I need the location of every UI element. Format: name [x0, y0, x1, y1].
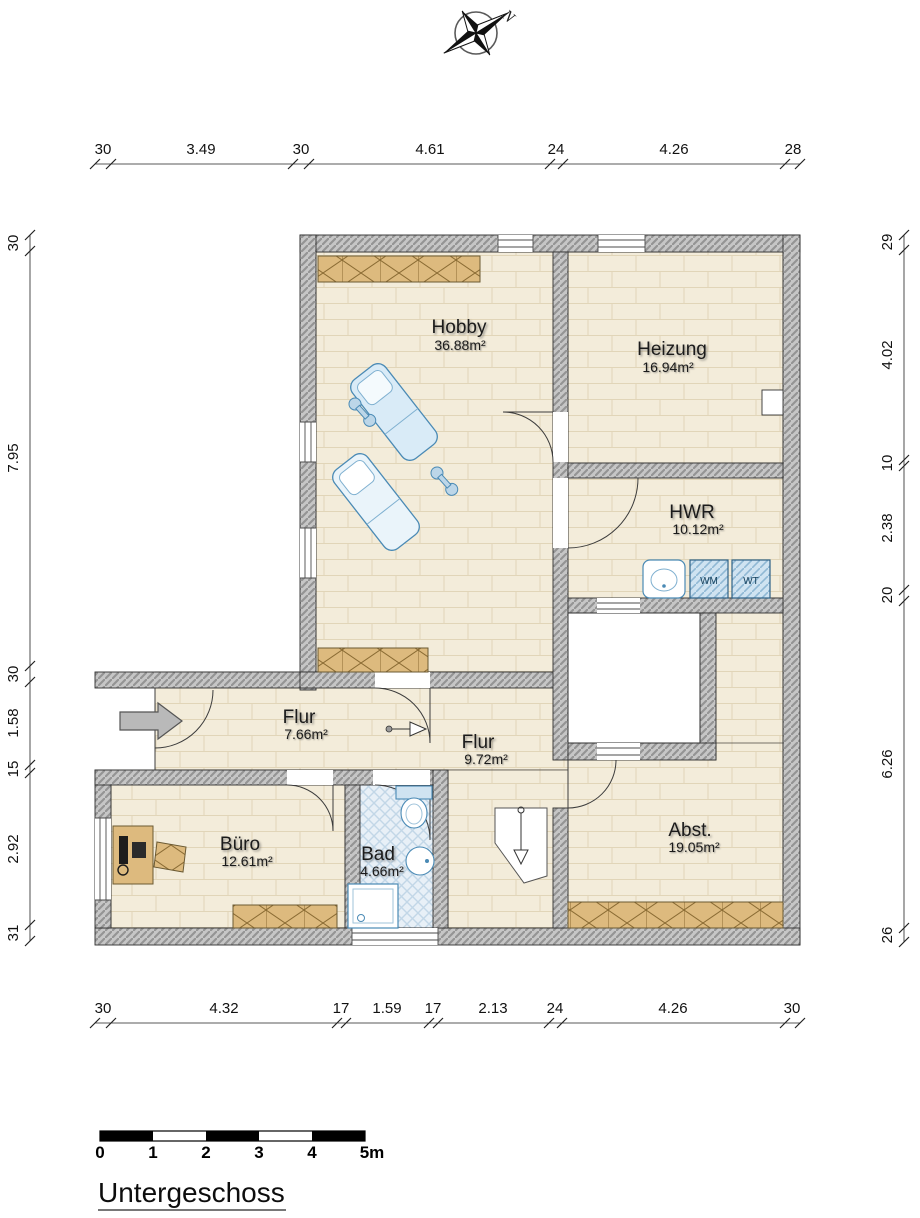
scale-label-4: 4 [307, 1143, 317, 1162]
dim-bottom-5: 2.13 [478, 1000, 507, 1017]
dim-bottom-8: 30 [784, 1000, 801, 1017]
dim-left-2: 30 [5, 666, 22, 683]
dim-right-3: 2.38 [879, 513, 896, 542]
dim-right-2: 10 [879, 455, 896, 472]
dim-left-6: 31 [5, 925, 22, 942]
room-label-buero: Büro [220, 834, 260, 855]
scale-label-5: 5m [360, 1143, 385, 1162]
dim-top-5: 4.26 [659, 141, 688, 158]
dim-top-2: 30 [293, 141, 310, 158]
room-area-abst: 19.05m² [668, 839, 720, 855]
dim-top-3: 4.61 [415, 141, 444, 158]
room-area-buero: 12.61m² [221, 853, 273, 869]
dim-bottom-0: 30 [95, 1000, 112, 1017]
hwr-sink [643, 560, 685, 598]
room-area-flur1: 7.66m² [284, 726, 328, 742]
stairwell-void [568, 613, 700, 743]
dim-bottom-3: 1.59 [372, 1000, 401, 1017]
bad-sink [406, 847, 434, 875]
dim-left-1: 7.95 [5, 443, 22, 472]
hobby-shelf [318, 256, 480, 282]
buero-wardrobe [233, 905, 337, 928]
room-area-hobby: 36.88m² [434, 337, 486, 353]
room-area-flur2: 9.72m² [464, 751, 508, 767]
dim-bottom-1: 4.32 [209, 1000, 238, 1017]
dim-right-6: 26 [879, 927, 896, 944]
room-label-flur1: Flur [283, 707, 316, 728]
washing-machine-label: WM [700, 576, 718, 587]
scale-bar: 0 1 2 3 4 5m [95, 1131, 384, 1162]
room-label-hobby: Hobby [432, 317, 487, 338]
floor-plan-drawing: N [0, 0, 920, 1218]
room-label-heizung: Heizung [637, 339, 707, 360]
floor-plan-page: N [0, 0, 920, 1218]
dim-right-5: 6.26 [879, 749, 896, 778]
dim-left-5: 2.92 [5, 834, 22, 863]
dim-top-4: 24 [548, 141, 565, 158]
scale-label-0: 0 [95, 1143, 104, 1162]
dim-top-6: 28 [785, 141, 802, 158]
dim-bottom-6: 24 [547, 1000, 564, 1017]
page-title: Untergeschoss [98, 1177, 285, 1208]
buero-chair [154, 842, 186, 872]
room-label-abst: Abst. [668, 820, 711, 841]
dim-left-3: 1.58 [5, 708, 22, 737]
dim-left-4: 15 [5, 761, 22, 778]
buero-desk [113, 826, 153, 884]
scale-label-3: 3 [254, 1143, 263, 1162]
abst-wardrobe [568, 902, 783, 928]
scale-label-1: 1 [148, 1143, 157, 1162]
dim-right-4: 20 [879, 587, 896, 604]
dim-top-0: 30 [95, 141, 112, 158]
dim-right-1: 4.02 [879, 340, 896, 369]
dim-right-0: 29 [879, 234, 896, 251]
room-label-flur2: Flur [462, 732, 495, 753]
compass-rose: N [430, 0, 522, 75]
dim-bottom-7: 4.26 [658, 1000, 687, 1017]
hobby-cabinet [318, 648, 428, 672]
room-label-bad: Bad [361, 844, 395, 865]
dim-bottom-2: 17 [333, 1000, 350, 1017]
north-label: N [498, 6, 519, 27]
dim-top-1: 3.49 [186, 141, 215, 158]
room-area-heizung: 16.94m² [642, 359, 694, 375]
dim-bottom-4: 17 [425, 1000, 442, 1017]
shower [348, 884, 398, 928]
room-label-hwr: HWR [669, 502, 714, 523]
room-area-hwr: 10.12m² [672, 521, 724, 537]
room-area-bad: 4.66m² [360, 863, 404, 879]
dryer-label: WT [743, 576, 759, 587]
dim-left-0: 30 [5, 235, 22, 252]
scale-label-2: 2 [201, 1143, 210, 1162]
